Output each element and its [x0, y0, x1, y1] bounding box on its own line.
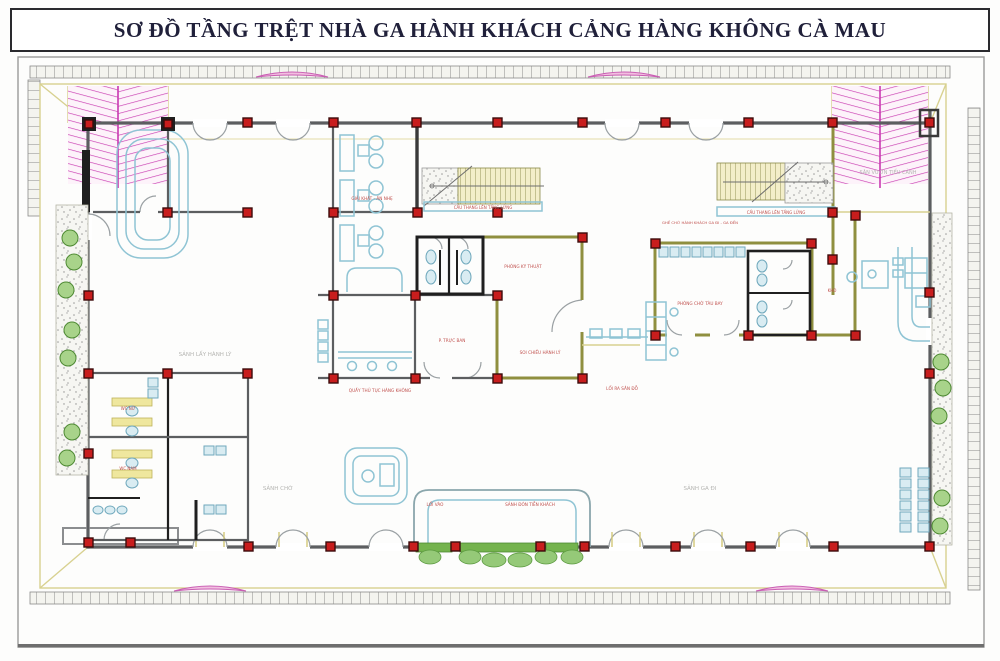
label-loi-vao: LỐI VÀO [427, 502, 445, 507]
floor-plan-canvas: SẢNH LẤY HÀNH LÝ GIẢI KHÁT - ĂN NHẸ CẦU … [0, 0, 1000, 661]
toilet-block-left-fixtures [93, 378, 226, 514]
stair-left [417, 123, 544, 212]
label-ghe-cho: GHẾ CHỜ HÀNH KHÁCH GA ĐI - GA ĐẾN [662, 219, 738, 225]
room-labels: SẢNH LẤY HÀNH LÝ GIẢI KHÁT - ĂN NHẸ CẦU … [119, 168, 916, 507]
label-wc-nam: WC NAM [119, 466, 137, 471]
label-cau-thang-trai: CẦU THANG LÊN TẦNG LỬNG [454, 205, 513, 210]
label-sanh-ga-di: SẢNH GA ĐI [684, 484, 717, 492]
planter-strip-left [56, 205, 88, 475]
label-phong-cho: PHÒNG CHỜ TÀU BAY [677, 301, 723, 306]
label-soi-chieu: SOI CHIẾU HÀNH LÝ [520, 349, 561, 355]
label-phong-ky-thuat: PHÒNG KỸ THUẬT [504, 264, 542, 269]
label-giai-khat: GIẢI KHÁT - ĂN NHẸ [351, 196, 393, 201]
entrance-canopy-loop [414, 490, 590, 547]
label-quay-thu-tuc: QUẦY THỦ TỤC HÀNG KHÔNG [349, 388, 411, 393]
label-cau-thang-phai: CẦU THANG LÊN TẦNG LỬNG [747, 210, 806, 215]
reception-desk [345, 448, 407, 504]
label-sanh-don-tien: SẢNH ĐÓN TIỄN KHÁCH [505, 502, 555, 507]
label-wc-nu: WC NỮ [121, 406, 136, 411]
label-truc-ban: P. TRỰC BAN [439, 338, 466, 343]
planter-band-bottom [416, 543, 583, 567]
stair-right [717, 162, 835, 216]
label-sanh-lay-hanh-ly: SẢNH LẤY HÀNH LÝ [179, 350, 232, 358]
office-desk-icons [847, 258, 927, 288]
checkin-counters [586, 302, 678, 360]
label-loi-ra-san-do: LỐI RA SÂN ĐỖ [606, 386, 638, 391]
planter-strip-right [931, 213, 952, 545]
label-sanh-cho: SẢNH CHỜ [263, 484, 293, 492]
toilet-core-center [417, 237, 483, 294]
label-kho: KHO [828, 288, 837, 293]
floor-plan-sheet: SƠ ĐỒ TẦNG TRỆT NHÀ GA HÀNH KHÁCH CẢNG H… [0, 0, 1000, 661]
label-san-vuon: SÂN VƯỜN TIỂU CẢNH [860, 168, 917, 176]
pink-arches [174, 72, 828, 591]
toilet-core-right [748, 251, 810, 335]
